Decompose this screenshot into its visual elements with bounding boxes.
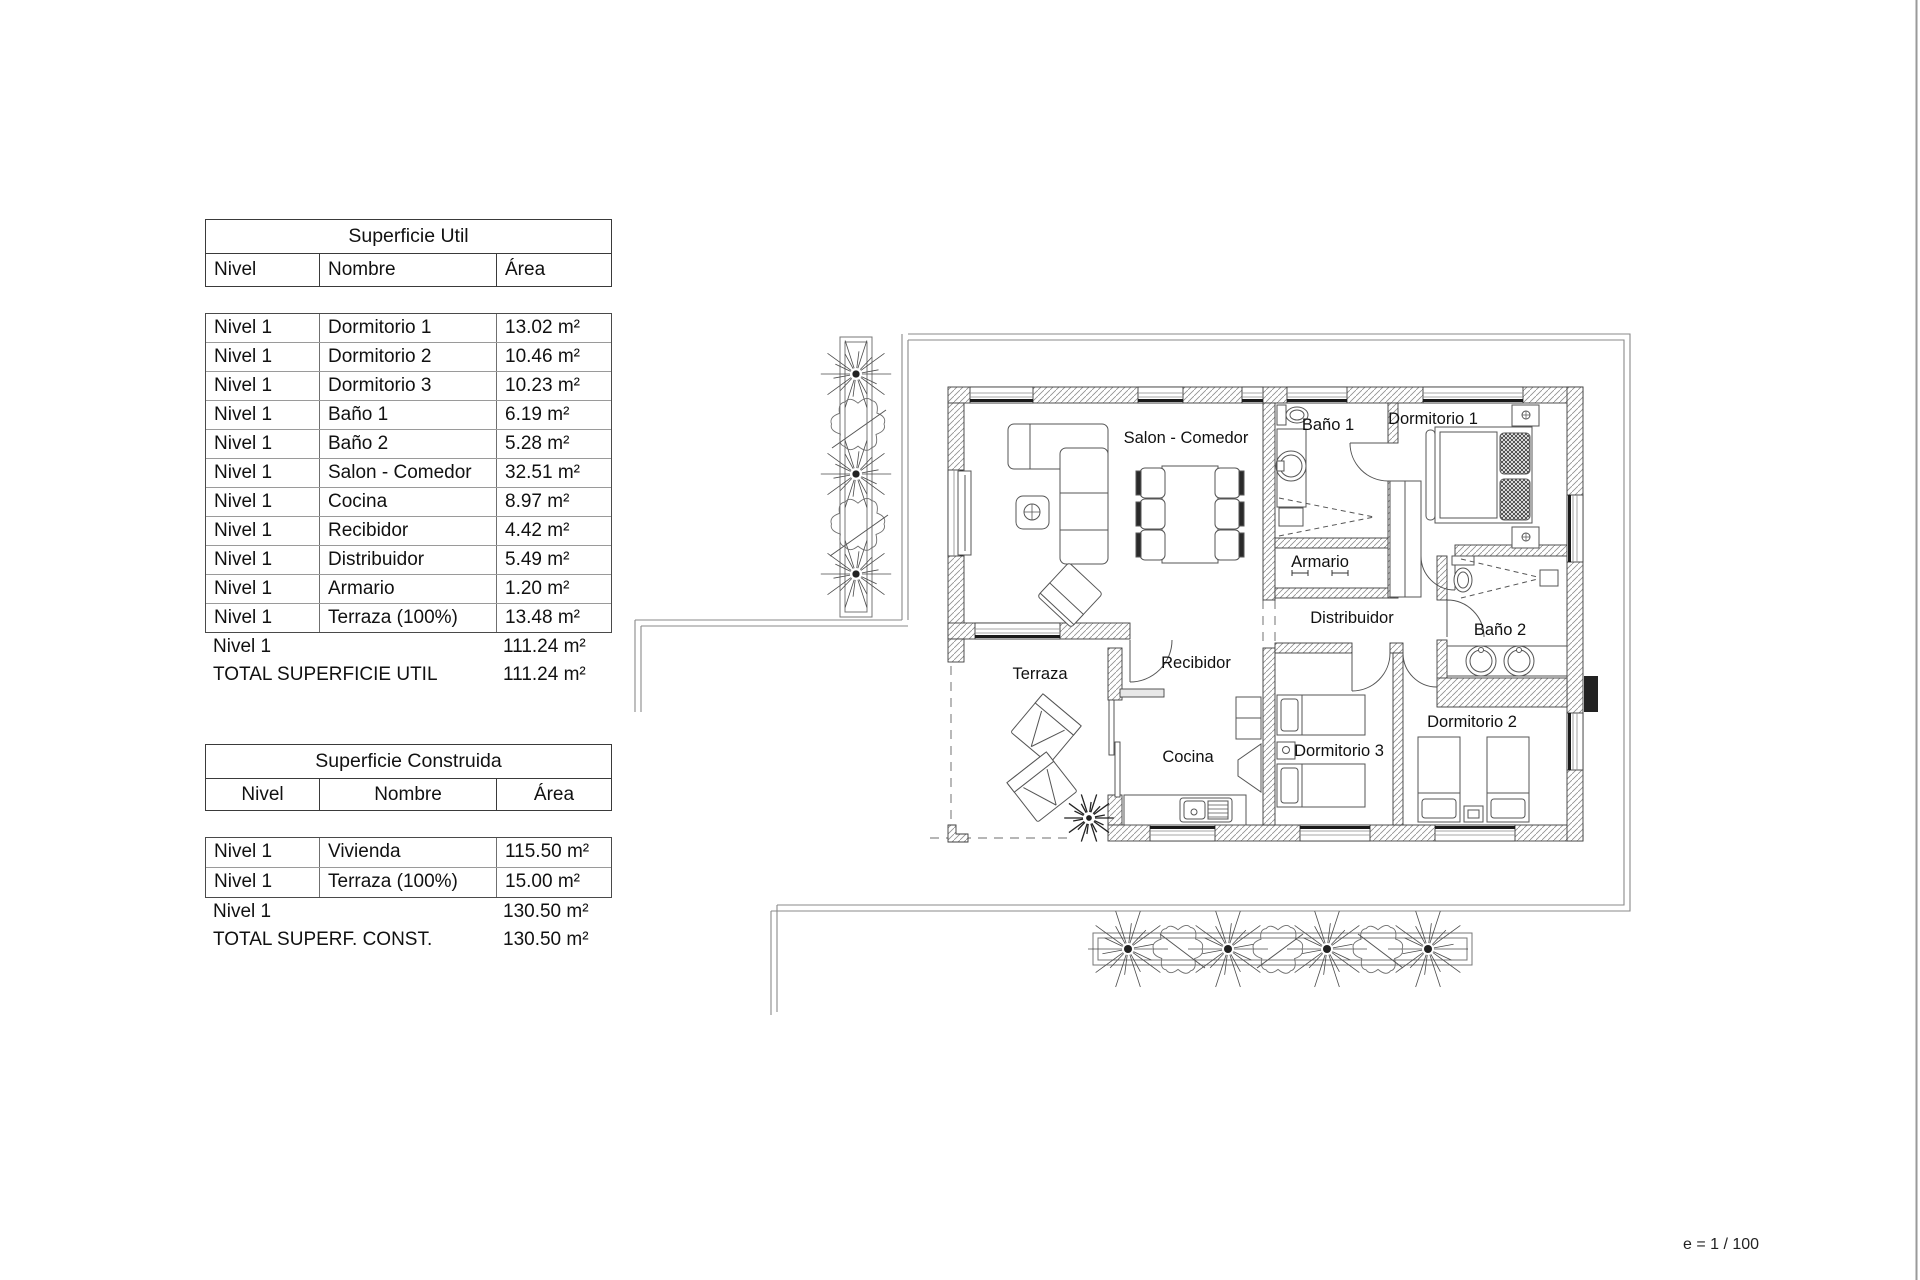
tree-icon	[821, 441, 891, 508]
subtotal-row: Nivel 1130.50 m²	[205, 898, 612, 926]
tree-icon	[1287, 911, 1367, 987]
tree-icon	[821, 341, 891, 408]
plant-icon	[1064, 794, 1114, 841]
table-row: Nivel 1Baño 16.19 m²	[206, 400, 611, 429]
dormitorio2-furniture	[1418, 737, 1529, 822]
recibidor-furniture	[1120, 689, 1164, 697]
room-label-salon-comedor: Salon - Comedor	[1124, 429, 1249, 447]
sliding-door	[1109, 700, 1120, 797]
table-body: Nivel 1Vivienda115.50 m² Nivel 1Terraza …	[205, 837, 612, 898]
col-header-nivel: Nivel	[206, 779, 319, 810]
tree-icon	[821, 541, 891, 608]
room-label-dormitorio-3: Dormitorio 3	[1294, 742, 1384, 760]
table-row: Nivel 1Recibidor4.42 m²	[206, 516, 611, 545]
tree-icon	[1088, 911, 1168, 987]
exterior-vent	[1584, 676, 1598, 712]
table-row: Nivel 1Vivienda115.50 m²	[206, 838, 611, 867]
pillow	[1500, 433, 1530, 474]
tree-icon	[1188, 911, 1268, 987]
bano2-fixtures	[1447, 556, 1567, 676]
table-row: Nivel 1Dormitorio 210.46 m²	[206, 342, 611, 371]
closet-column	[1390, 481, 1421, 597]
table-header-box: Superficie Construida Nivel Nombre Área	[205, 744, 612, 811]
table-row: Nivel 1Terraza (100%)15.00 m²	[206, 867, 611, 897]
table-row: Nivel 1Cocina8.97 m²	[206, 487, 611, 516]
armchair	[1037, 562, 1102, 627]
column-headers: Nivel Nombre Área	[206, 254, 611, 286]
col-header-nivel: Nivel	[206, 254, 319, 286]
superficie-construida-table: Superficie Construida Nivel Nombre Área …	[205, 744, 612, 954]
pillow	[1422, 799, 1456, 818]
table-footer: Nivel 1130.50 m² TOTAL SUPERF. CONST.130…	[205, 898, 612, 954]
table-row: Nivel 1Dormitorio 113.02 m²	[206, 314, 611, 342]
drawing-sheet: Salon - Comedor Baño 1 Dormitorio 1 Arma…	[0, 0, 1920, 1280]
table-row: Nivel 1Distribuidor5.49 m²	[206, 545, 611, 574]
terraza-furniture	[1007, 694, 1081, 822]
lounge-chair	[1007, 752, 1077, 822]
superficie-util-table: Superficie Util Nivel Nombre Área Nivel …	[205, 219, 612, 689]
total-row: TOTAL SUPERFICIE UTIL111.24 m²	[205, 661, 612, 689]
table-row: Nivel 1Armario1.20 m²	[206, 574, 611, 603]
room-label-bano-1: Baño 1	[1302, 416, 1354, 434]
bed-footboard	[1426, 430, 1435, 520]
pillow	[1491, 799, 1525, 818]
dining-table	[1162, 466, 1218, 563]
salon-furniture	[958, 424, 1244, 628]
room-label-terraza: Terraza	[1012, 665, 1068, 683]
column-headers: Nivel Nombre Área	[206, 779, 611, 810]
table-row: Nivel 1Salon - Comedor32.51 m²	[206, 458, 611, 487]
console	[1120, 689, 1164, 697]
table-row: Nivel 1Dormitorio 310.23 m²	[206, 371, 611, 400]
col-header-nombre: Nombre	[319, 254, 496, 286]
toilet	[1277, 405, 1286, 425]
table-body: Nivel 1Dormitorio 113.02 m² Nivel 1Dormi…	[205, 313, 612, 633]
room-label-distribuidor: Distribuidor	[1310, 609, 1394, 627]
table-footer: Nivel 1111.24 m² TOTAL SUPERFICIE UTIL11…	[205, 633, 612, 689]
toilet	[1452, 556, 1474, 565]
room-label-armario: Armario	[1291, 553, 1349, 571]
pillow	[1281, 768, 1298, 803]
bush-icon	[831, 498, 885, 550]
room-label-dormitorio-1: Dormitorio 1	[1388, 410, 1478, 428]
scale-note: e = 1 / 100	[1683, 1236, 1759, 1253]
pillow	[1500, 479, 1530, 520]
sofa	[1060, 448, 1108, 564]
table-row: Nivel 1Baño 25.28 m²	[206, 429, 611, 458]
col-header-nombre: Nombre	[319, 779, 496, 810]
tree-icon	[1388, 911, 1468, 987]
col-header-area: Área	[496, 254, 611, 286]
col-header-area: Área	[496, 779, 611, 810]
table-row: Nivel 1Terraza (100%)13.48 m²	[206, 603, 611, 632]
table-title: Superficie Construida	[206, 745, 611, 779]
pillow	[1281, 699, 1298, 731]
subtotal-row: Nivel 1111.24 m²	[205, 633, 612, 661]
room-label-cocina: Cocina	[1162, 748, 1214, 766]
total-row: TOTAL SUPERF. CONST.130.50 m²	[205, 926, 612, 954]
room-label-bano-2: Baño 2	[1474, 621, 1526, 639]
room-label-dormitorio-2: Dormitorio 2	[1427, 713, 1517, 731]
table-header-box: Superficie Util Nivel Nombre Área	[205, 219, 612, 287]
table-title: Superficie Util	[206, 220, 611, 254]
pantry	[1238, 744, 1261, 792]
room-label-recibidor: Recibidor	[1161, 654, 1231, 672]
